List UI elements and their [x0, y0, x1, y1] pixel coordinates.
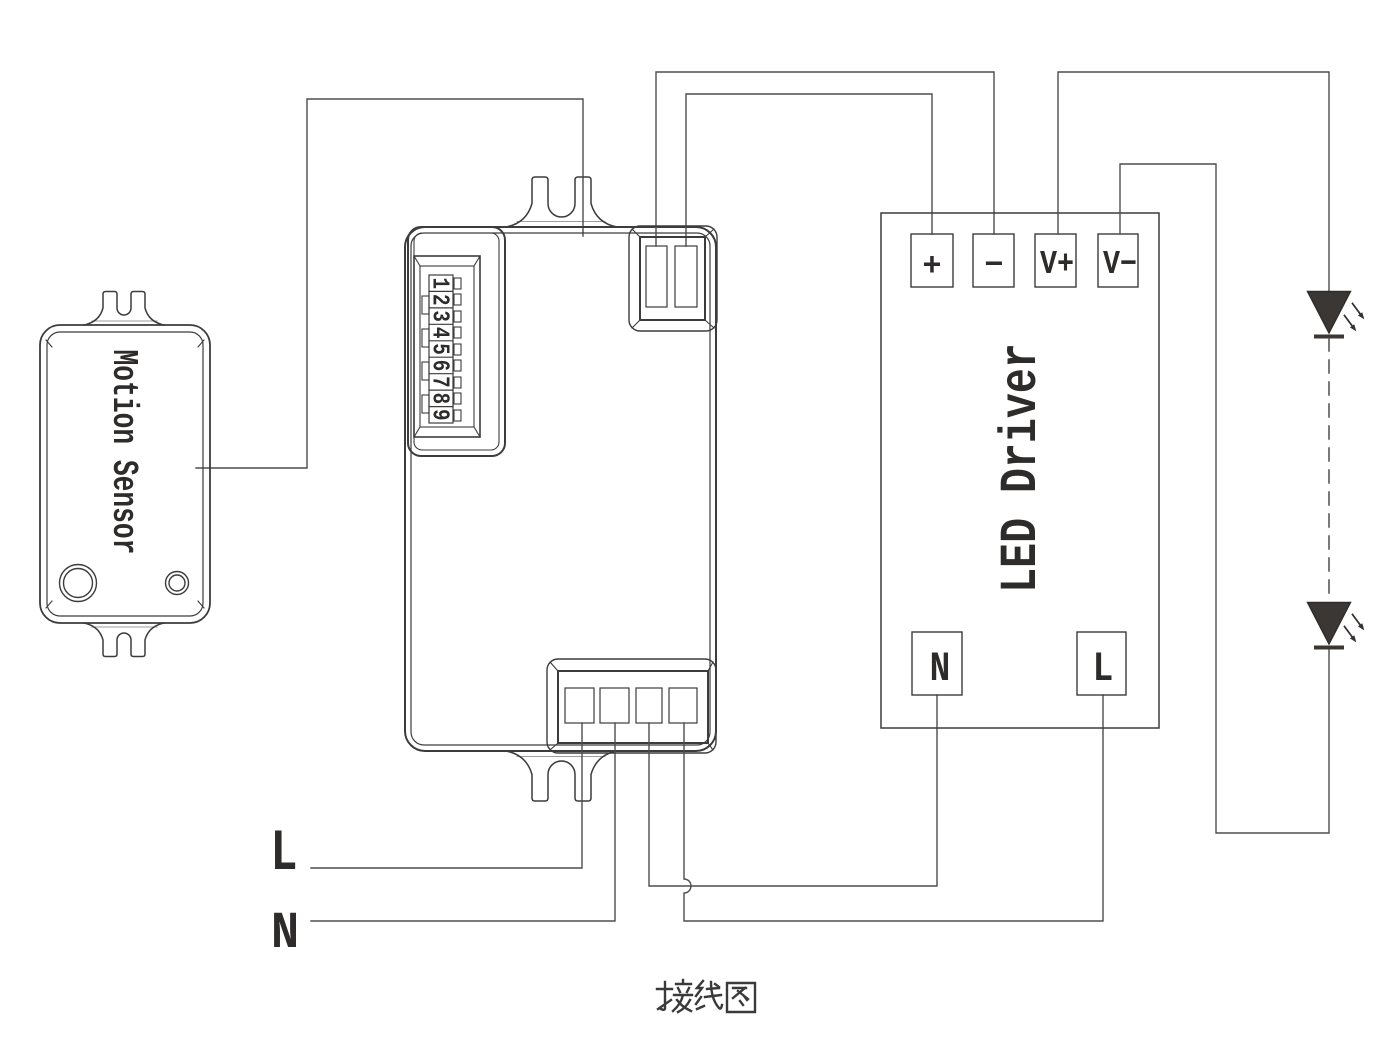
svg-text:9: 9 — [426, 409, 454, 421]
svg-text:4: 4 — [426, 327, 454, 339]
svg-text:3: 3 — [426, 310, 454, 322]
svg-text:V+: V+ — [1040, 246, 1074, 284]
svg-text:5: 5 — [426, 343, 454, 355]
svg-text:LED Driver: LED Driver — [993, 343, 1052, 593]
svg-text:Motion Sensor: Motion Sensor — [103, 350, 143, 555]
svg-text:1: 1 — [426, 277, 454, 289]
svg-text:2: 2 — [426, 294, 454, 306]
svg-text:−: − — [984, 247, 1003, 284]
svg-text:N: N — [271, 904, 299, 963]
svg-text:+: + — [922, 248, 941, 285]
svg-text:N: N — [930, 645, 951, 693]
svg-text:L: L — [270, 821, 297, 887]
svg-text:8: 8 — [426, 393, 454, 405]
svg-text:7: 7 — [426, 376, 454, 388]
svg-text:L: L — [1093, 645, 1114, 693]
svg-text:V−: V− — [1103, 246, 1137, 284]
svg-text:6: 6 — [426, 360, 454, 372]
